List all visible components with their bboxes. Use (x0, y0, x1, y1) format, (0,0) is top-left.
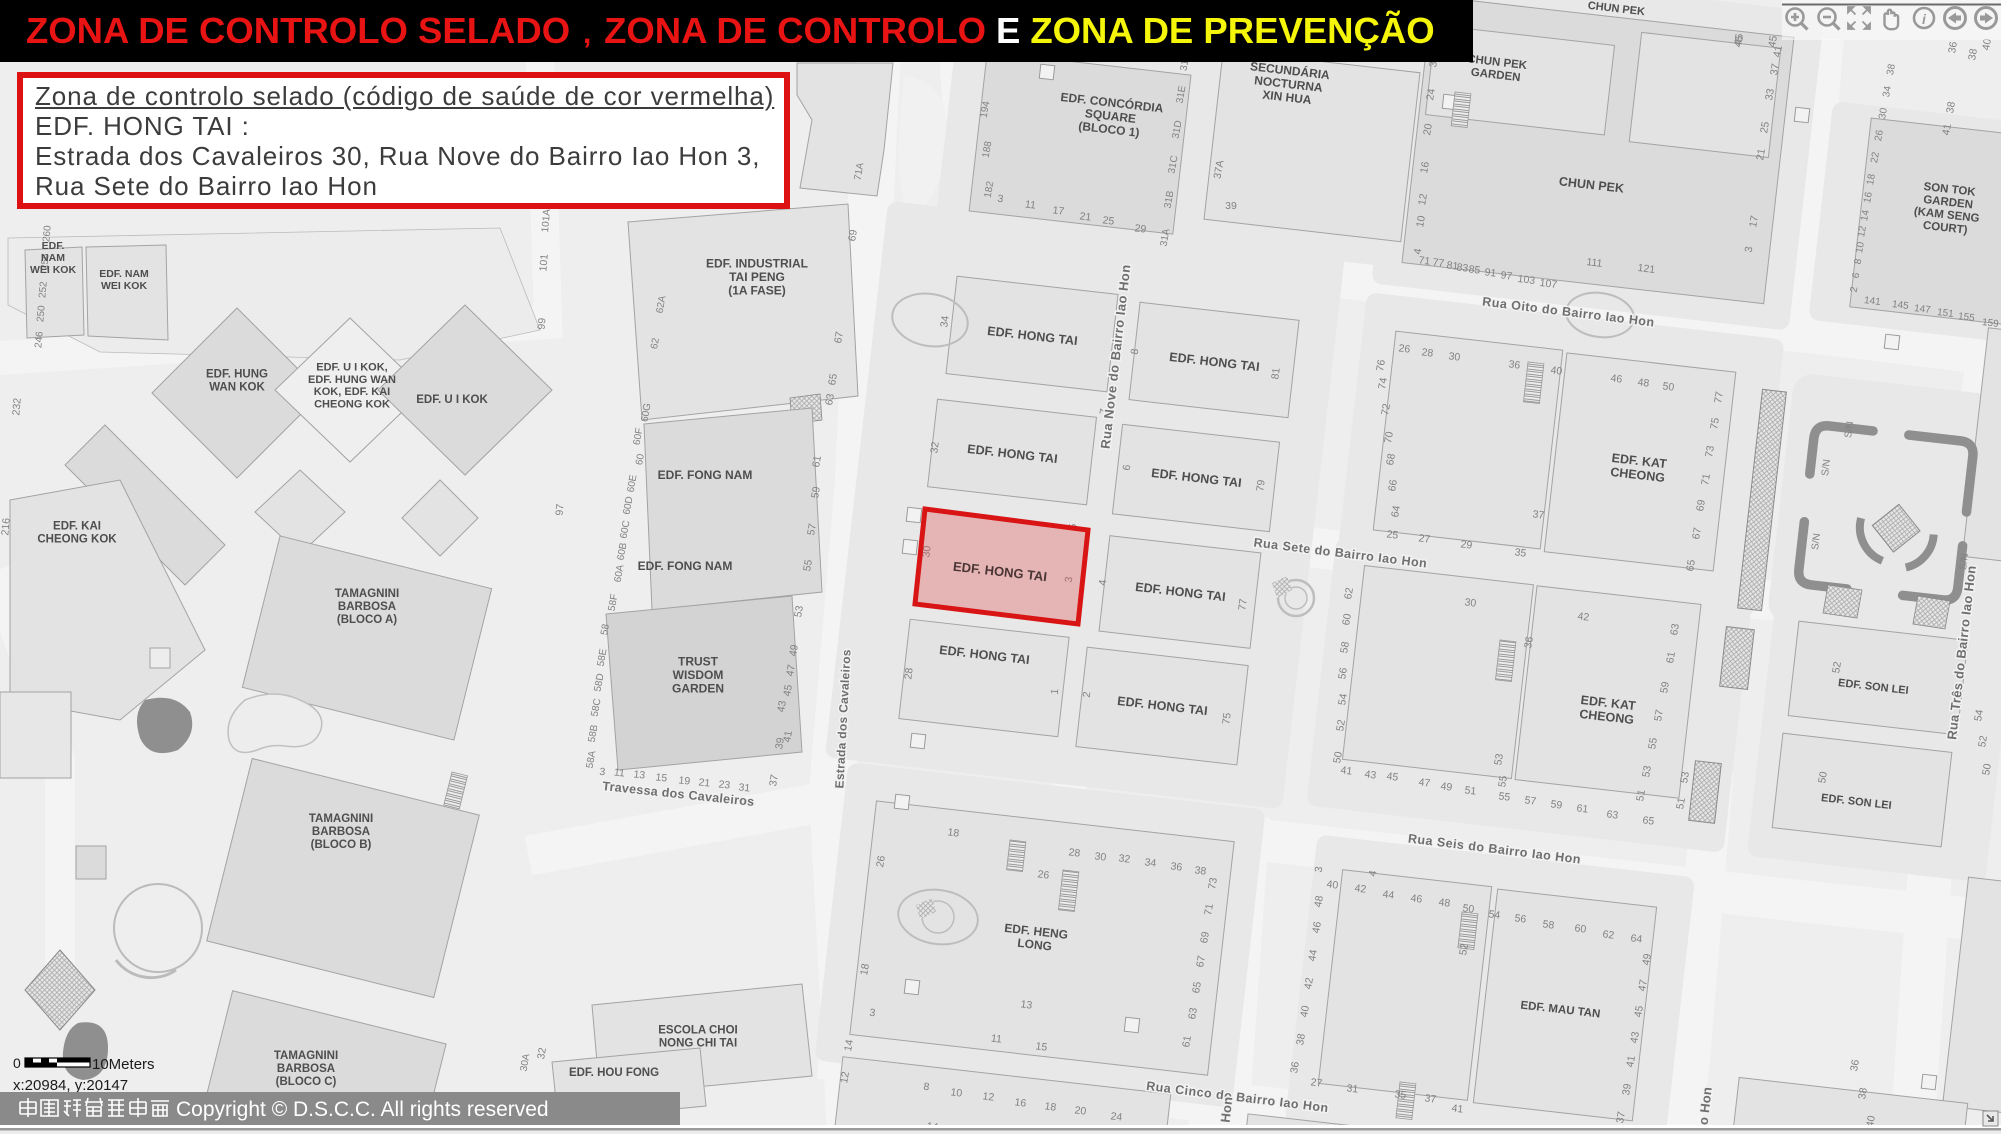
svg-text:71: 71 (1418, 254, 1431, 267)
svg-text:111: 111 (1586, 256, 1603, 270)
svg-text:55: 55 (1498, 790, 1511, 803)
svg-text:ESCOLA CHOINONG CHI TAI: ESCOLA CHOINONG CHI TAI (658, 1025, 737, 1050)
svg-text:97: 97 (554, 503, 567, 516)
svg-text:77: 77 (1432, 256, 1445, 269)
svg-text:151: 151 (1936, 307, 1954, 320)
svg-text:EDF. NAMWEI KOK: EDF. NAMWEI KOK (99, 268, 149, 292)
svg-text:25: 25 (1386, 528, 1399, 541)
svg-text:121: 121 (1637, 262, 1656, 276)
svg-text:51: 51 (1464, 784, 1477, 797)
svg-text:41: 41 (781, 730, 795, 744)
svg-text:EDF. FONG NAM: EDF. FONG NAM (638, 559, 733, 573)
svg-text:252: 252 (37, 281, 49, 299)
svg-text:24: 24 (1424, 88, 1438, 102)
svg-text:EDF. HOU FONG: EDF. HOU FONG (569, 1067, 659, 1079)
svg-text:38: 38 (1966, 48, 1980, 62)
svg-text:12: 12 (1416, 193, 1430, 207)
svg-text:39: 39 (1620, 1083, 1634, 1097)
svg-text:21: 21 (1079, 210, 1092, 223)
svg-text:55: 55 (801, 559, 815, 573)
svg-text:85: 85 (1468, 263, 1481, 276)
svg-text:13: 13 (633, 768, 646, 781)
svg-text:Hon: Hon (1218, 1096, 1236, 1124)
svg-text:91: 91 (1484, 266, 1497, 279)
svg-text:43: 43 (1628, 1031, 1642, 1045)
svg-text:21: 21 (1754, 148, 1768, 162)
svg-text:69: 69 (846, 229, 860, 243)
svg-text:10: 10 (950, 1086, 963, 1099)
svg-text:12: 12 (982, 1090, 995, 1103)
svg-text:10Meters: 10Meters (92, 1056, 155, 1073)
svg-text:48: 48 (1438, 896, 1451, 909)
svg-text:EDF. HUNGWAN KOK: EDF. HUNGWAN KOK (206, 369, 268, 394)
svg-text:36: 36 (1170, 860, 1183, 873)
svg-text:15: 15 (655, 771, 668, 784)
svg-text:19: 19 (678, 774, 691, 787)
svg-text:58: 58 (1338, 641, 1352, 655)
svg-text:73: 73 (1703, 445, 1717, 459)
svg-text:48: 48 (1637, 376, 1650, 389)
svg-text:17: 17 (1747, 215, 1761, 229)
svg-text:27: 27 (1310, 1076, 1323, 1089)
svg-text:Copyright © D.S.C.C. All right: Copyright © D.S.C.C. All rights reserved (176, 1098, 549, 1121)
svg-text:36: 36 (1848, 1059, 1862, 1073)
svg-text:11: 11 (1024, 198, 1036, 211)
svg-text:23: 23 (718, 778, 731, 791)
svg-text:TAMAGNINIBARBOSA(BLOCO C): TAMAGNINIBARBOSA(BLOCO C) (274, 1050, 338, 1088)
svg-text:43: 43 (775, 700, 789, 714)
svg-text:30: 30 (1094, 850, 1107, 863)
svg-text:57: 57 (1524, 794, 1537, 807)
svg-text:147: 147 (1913, 303, 1931, 316)
svg-text:37: 37 (1532, 508, 1545, 521)
svg-text:60: 60 (1340, 613, 1354, 627)
svg-text:26: 26 (1398, 342, 1411, 355)
svg-text:37: 37 (767, 774, 781, 788)
svg-text:43: 43 (1364, 768, 1377, 781)
svg-text:57: 57 (1652, 709, 1666, 723)
svg-text:28: 28 (902, 667, 915, 680)
svg-text:52: 52 (1334, 719, 1348, 733)
svg-text:61: 61 (1576, 802, 1589, 815)
svg-text:46: 46 (1310, 921, 1324, 935)
svg-text:10: 10 (1414, 215, 1428, 229)
svg-text:45: 45 (1732, 33, 1746, 47)
svg-text:53: 53 (1678, 771, 1692, 785)
svg-text:37: 37 (1424, 1092, 1437, 1105)
svg-text:47: 47 (1636, 979, 1650, 993)
svg-text:107: 107 (1539, 277, 1558, 291)
svg-text:99: 99 (536, 317, 549, 330)
svg-text:25: 25 (1758, 121, 1772, 135)
svg-text:56: 56 (1514, 912, 1527, 925)
svg-text:67: 67 (1690, 527, 1704, 541)
svg-text:64: 64 (1630, 932, 1643, 945)
svg-text:29: 29 (1460, 538, 1473, 551)
svg-text:63: 63 (823, 393, 837, 407)
svg-text:12: 12 (838, 1071, 852, 1085)
svg-text:26: 26 (1037, 868, 1050, 881)
svg-text:42: 42 (1577, 610, 1590, 623)
svg-text:141: 141 (1863, 295, 1881, 308)
svg-text:40: 40 (1550, 364, 1563, 377)
svg-text:x:20984, y:20147: x:20984, y:20147 (13, 1077, 128, 1094)
svg-text:56: 56 (1336, 667, 1350, 681)
svg-text:54: 54 (1972, 709, 1986, 723)
svg-text:75: 75 (1708, 417, 1722, 431)
svg-text:36: 36 (1508, 358, 1521, 371)
svg-text:25: 25 (1102, 214, 1115, 227)
svg-text:64: 64 (1389, 505, 1403, 519)
svg-text:18: 18 (1044, 1100, 1057, 1113)
svg-text:55: 55 (1496, 775, 1510, 789)
svg-text:EDF. U I KOK,EDF. HUNG WANKOK,: EDF. U I KOK,EDF. HUNG WANKOK, EDF. KAIC… (308, 362, 396, 411)
svg-text:63: 63 (1186, 1007, 1200, 1021)
svg-text:103: 103 (1517, 273, 1536, 287)
svg-text:45: 45 (1632, 1005, 1646, 1019)
svg-text:50: 50 (1331, 751, 1345, 765)
svg-text:60: 60 (1574, 922, 1587, 935)
svg-text:37: 37 (1768, 63, 1782, 77)
svg-text:TRUSTWISDOMGARDEN: TRUSTWISDOMGARDEN (672, 655, 724, 696)
svg-text:21: 21 (698, 776, 711, 789)
svg-text:16: 16 (1014, 1096, 1027, 1109)
svg-text:29: 29 (1134, 222, 1147, 235)
svg-text:65: 65 (826, 373, 840, 387)
svg-text:45: 45 (781, 684, 795, 698)
svg-text:48: 48 (1312, 895, 1326, 909)
svg-text:69: 69 (1694, 499, 1708, 513)
svg-text:50: 50 (1462, 902, 1475, 915)
svg-text:37: 37 (1614, 1111, 1628, 1125)
svg-text:S/N: S/N (1810, 533, 1823, 551)
svg-text:13: 13 (1020, 998, 1033, 1011)
svg-text:74: 74 (1376, 377, 1390, 391)
svg-text:68: 68 (1384, 453, 1398, 467)
svg-text:52: 52 (1457, 943, 1471, 957)
svg-text:42: 42 (1302, 977, 1316, 991)
svg-text:32: 32 (535, 1047, 549, 1061)
svg-text:155: 155 (1957, 311, 1975, 324)
svg-text:36: 36 (1288, 1061, 1302, 1075)
svg-text:30: 30 (1464, 596, 1477, 609)
svg-text:246: 246 (33, 331, 45, 349)
svg-text:27: 27 (1418, 532, 1431, 545)
svg-text:28: 28 (1068, 846, 1081, 859)
svg-text:11: 11 (990, 1032, 1002, 1045)
svg-text:41: 41 (1624, 1055, 1638, 1069)
svg-text:53: 53 (1640, 765, 1654, 779)
svg-text:38: 38 (1856, 1087, 1870, 1101)
svg-text:73: 73 (1206, 877, 1220, 891)
svg-text:16: 16 (1418, 161, 1432, 175)
svg-text:216: 216 (0, 517, 13, 536)
svg-text:47: 47 (1418, 776, 1431, 789)
svg-text:77: 77 (1712, 391, 1726, 405)
svg-text:S/N: S/N (1843, 421, 1856, 439)
svg-text:38: 38 (1944, 101, 1958, 115)
svg-text:38: 38 (1294, 1033, 1308, 1047)
svg-text:159: 159 (1981, 317, 1999, 330)
svg-text:18: 18 (858, 963, 872, 977)
svg-text:67: 67 (1194, 955, 1208, 969)
svg-text:45: 45 (1766, 35, 1780, 49)
svg-text:20: 20 (1421, 123, 1435, 137)
svg-text:TAMAGNINIBARBOSA(BLOCO B): TAMAGNINIBARBOSA(BLOCO B) (309, 813, 373, 851)
svg-text:63: 63 (1606, 808, 1619, 821)
svg-text:54: 54 (1488, 908, 1501, 921)
svg-text:59: 59 (1550, 798, 1563, 811)
svg-text:44: 44 (1382, 888, 1395, 901)
svg-text:41: 41 (1940, 123, 1954, 137)
svg-text:0: 0 (13, 1055, 21, 1071)
svg-text:34: 34 (938, 315, 951, 328)
svg-text:250: 250 (35, 305, 47, 323)
svg-text:50: 50 (1980, 763, 1994, 777)
svg-text:58: 58 (1542, 918, 1555, 931)
svg-text:26: 26 (874, 855, 888, 869)
svg-text:11: 11 (613, 766, 625, 779)
svg-text:36: 36 (1946, 41, 1960, 55)
svg-text:41: 41 (1451, 1102, 1464, 1115)
svg-text:38: 38 (1194, 864, 1207, 877)
svg-text:32: 32 (928, 441, 941, 454)
svg-text:72: 72 (1379, 403, 1393, 417)
svg-text:45: 45 (1386, 770, 1399, 783)
svg-text:57: 57 (805, 523, 819, 537)
svg-text:75: 75 (1220, 712, 1233, 725)
svg-text:24: 24 (1110, 1110, 1123, 1123)
svg-text:52: 52 (1830, 661, 1844, 675)
svg-text:39: 39 (1225, 200, 1237, 212)
svg-text:65: 65 (1642, 814, 1655, 827)
svg-text:15: 15 (1035, 1040, 1048, 1053)
svg-text:40: 40 (1298, 1005, 1312, 1019)
svg-text:145: 145 (1891, 299, 1909, 312)
svg-text:18: 18 (947, 826, 960, 839)
svg-text:33: 33 (1763, 88, 1777, 102)
svg-text:49: 49 (1440, 780, 1453, 793)
svg-text:76: 76 (1374, 359, 1388, 373)
svg-text:65: 65 (1684, 559, 1698, 573)
svg-text:53: 53 (1492, 753, 1506, 767)
svg-text:28: 28 (1421, 346, 1434, 359)
svg-text:77: 77 (1236, 598, 1249, 611)
svg-text:36: 36 (1522, 636, 1536, 650)
svg-text:63: 63 (1668, 623, 1682, 637)
svg-text:EDF. U I KOK: EDF. U I KOK (416, 394, 488, 406)
svg-text:70: 70 (1382, 431, 1396, 445)
svg-text:59: 59 (1658, 681, 1672, 695)
svg-text:97: 97 (1500, 269, 1513, 282)
svg-text:47: 47 (784, 664, 798, 678)
svg-text:61: 61 (1180, 1035, 1194, 1049)
svg-text:41: 41 (1340, 764, 1353, 777)
svg-text:46: 46 (1610, 372, 1623, 385)
svg-text:14: 14 (842, 1039, 856, 1053)
svg-text:40: 40 (1326, 878, 1339, 891)
svg-text:67: 67 (832, 331, 846, 345)
svg-text:101A: 101A (540, 208, 553, 233)
svg-text:51: 51 (1674, 797, 1688, 811)
svg-text:62: 62 (1342, 587, 1356, 601)
svg-text:35: 35 (1514, 546, 1527, 559)
svg-text:61: 61 (1664, 651, 1678, 665)
svg-text:232: 232 (10, 397, 23, 416)
svg-text:17: 17 (1052, 204, 1065, 217)
svg-text:83: 83 (1456, 261, 1469, 274)
svg-text:49: 49 (1640, 953, 1654, 967)
svg-text:42: 42 (1354, 882, 1367, 895)
svg-text:30: 30 (1448, 350, 1461, 363)
svg-text:49: 49 (787, 644, 801, 658)
svg-text:53: 53 (792, 605, 806, 619)
svg-text:20: 20 (1074, 1104, 1087, 1117)
svg-text:61: 61 (810, 455, 824, 469)
svg-text:55: 55 (1646, 737, 1660, 751)
svg-text:66: 66 (1386, 479, 1400, 493)
svg-text:50: 50 (1662, 380, 1675, 393)
svg-text:62: 62 (1602, 928, 1615, 941)
svg-text:31: 31 (1346, 1082, 1359, 1095)
svg-text:32: 32 (1118, 852, 1131, 865)
svg-text:46: 46 (1410, 892, 1423, 905)
svg-text:51: 51 (1634, 789, 1648, 803)
svg-text:52: 52 (1976, 735, 1990, 749)
svg-text:81: 81 (1269, 367, 1282, 380)
svg-text:S/N: S/N (1820, 459, 1833, 477)
svg-text:71: 71 (1202, 903, 1216, 917)
svg-text:34: 34 (1144, 856, 1157, 869)
svg-text:EDF. FONG NAM: EDF. FONG NAM (658, 468, 753, 482)
svg-text:50: 50 (1816, 771, 1830, 785)
svg-text:35: 35 (1394, 1088, 1407, 1101)
svg-text:59: 59 (809, 486, 823, 500)
svg-text:TAMAGNINIBARBOSA(BLOCO A): TAMAGNINIBARBOSA(BLOCO A) (335, 588, 399, 626)
svg-text:71: 71 (1699, 473, 1713, 487)
svg-text:69: 69 (1198, 931, 1212, 945)
svg-text:54: 54 (1336, 693, 1350, 707)
svg-text:101: 101 (537, 253, 550, 272)
svg-text:65: 65 (1190, 981, 1204, 995)
svg-text:79: 79 (1254, 479, 1267, 492)
svg-text:44: 44 (1306, 949, 1320, 963)
